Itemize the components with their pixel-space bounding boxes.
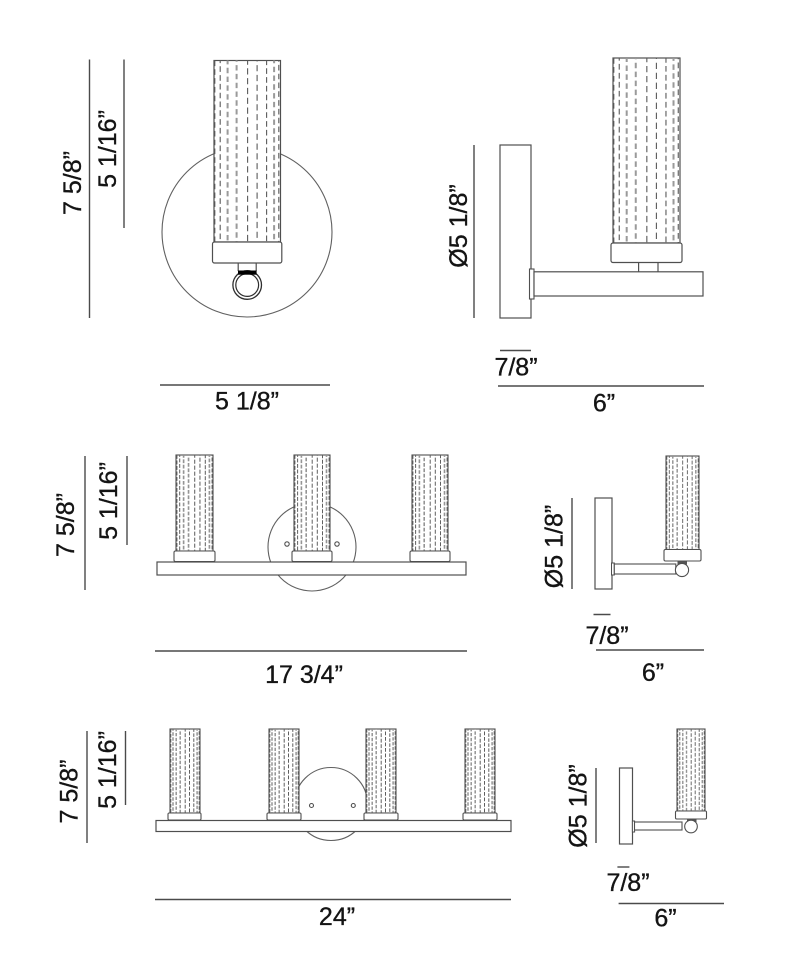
svg-text:7 5/8”: 7 5/8” — [56, 760, 84, 824]
svg-text:5 1/16”: 5 1/16” — [94, 731, 122, 809]
svg-text:5 1/16”: 5 1/16” — [95, 462, 123, 540]
svg-text:5 1/16”: 5 1/16” — [94, 110, 122, 188]
svg-text:6”: 6” — [642, 659, 664, 687]
svg-text:24”: 24” — [319, 903, 355, 931]
svg-text:7/8”: 7/8” — [606, 869, 649, 897]
svg-text:5 1/8”: 5 1/8” — [215, 388, 279, 416]
svg-text:Ø5 1/8”: Ø5 1/8” — [565, 764, 593, 847]
svg-text:Ø5 1/8”: Ø5 1/8” — [445, 184, 473, 267]
svg-text:7 5/8”: 7 5/8” — [59, 151, 87, 215]
svg-text:6”: 6” — [593, 390, 615, 418]
svg-text:7/8”: 7/8” — [494, 354, 537, 382]
svg-text:6”: 6” — [654, 905, 676, 933]
svg-text:17 3/4”: 17 3/4” — [265, 661, 343, 689]
svg-text:7/8”: 7/8” — [585, 622, 628, 650]
svg-text:7 5/8”: 7 5/8” — [52, 493, 80, 557]
svg-text:Ø5 1/8”: Ø5 1/8” — [541, 505, 569, 588]
